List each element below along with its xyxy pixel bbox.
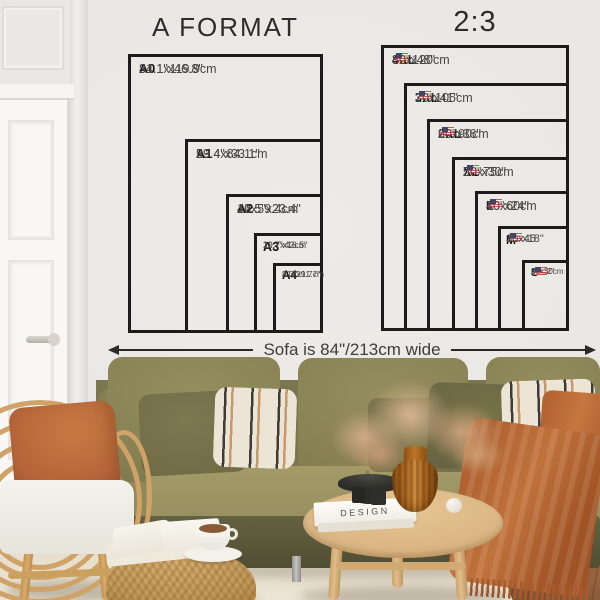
- chart-title-a-format: A FORMAT: [128, 12, 323, 43]
- arrow-right-icon: [585, 345, 596, 355]
- size-box-a4: A48.3"x11.7"21x29.7cm: [273, 263, 323, 333]
- size-cm: 40x60cm: [486, 199, 537, 214]
- size-cm: 20x30cm: [531, 267, 563, 276]
- size-cm: 30x45: [506, 233, 536, 246]
- size-cm: 84.1x119.9cm: [139, 62, 217, 77]
- size-cm: 70x105cm: [415, 91, 473, 106]
- size-cm: 59.4x84.1cm: [196, 147, 268, 162]
- size-cm: 42x59.4cm: [237, 202, 298, 217]
- size-cm: 29.7x42cm: [263, 240, 306, 250]
- arrow-line: [451, 349, 585, 351]
- sofa-width-arrow: Sofa is 84"/213cm wide: [108, 340, 596, 360]
- sofa-leg: [292, 556, 301, 582]
- decor-ball: [446, 498, 462, 513]
- poster-size-guide-scene: DESIGN A FORMAT A031.1"x46.8"84.1x119.9c…: [0, 0, 600, 600]
- coffee-surface: [199, 524, 227, 533]
- arrow-left-icon: [108, 345, 119, 355]
- candle-holder: [371, 489, 386, 505]
- flower-blob: [450, 435, 505, 475]
- sofa-width-label: Sofa is 84"/213cm wide: [263, 340, 440, 360]
- size-cm: 50x75cm: [463, 165, 514, 180]
- arrow-line: [119, 349, 253, 351]
- size-cm: 21x29.7cm: [282, 270, 324, 280]
- size-cm: 80x120cm: [392, 53, 450, 68]
- design-book-title: DESIGN: [340, 506, 390, 519]
- pillow-striped: [213, 387, 298, 470]
- table-rail: [336, 562, 466, 570]
- size-box-s: S8"x12"20x30cm: [522, 260, 569, 331]
- candle-holder: [352, 487, 365, 503]
- size-cm: 60x90cm: [438, 127, 489, 142]
- chart-title-2-3: 2:3: [381, 6, 569, 39]
